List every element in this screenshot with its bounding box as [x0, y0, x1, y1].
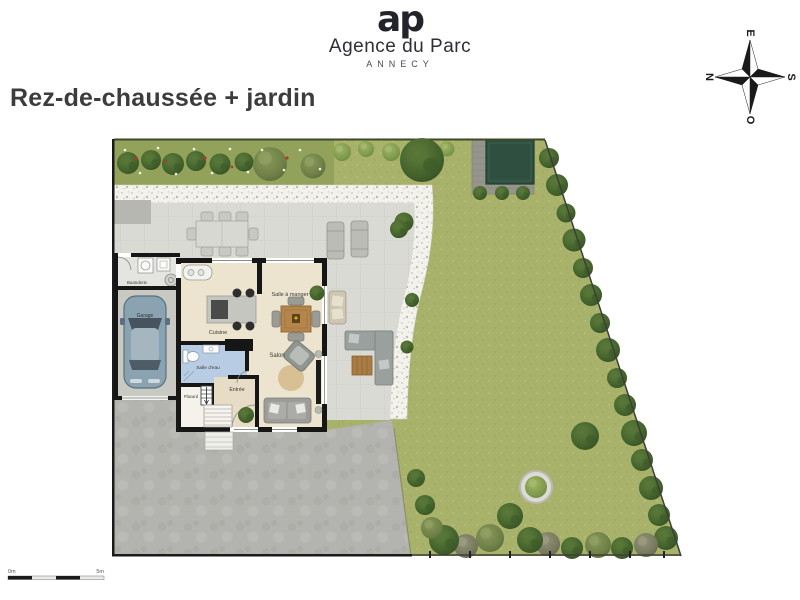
- room-label-cuisine: Cuisine: [209, 330, 227, 336]
- tv-sideboard: [316, 360, 321, 404]
- pool: [486, 140, 534, 184]
- scale-end-label: 5m: [96, 569, 104, 575]
- compass-west-label: O: [744, 116, 756, 125]
- compass-south-label: S: [785, 73, 797, 80]
- driveway-bottom-border: [112, 554, 412, 557]
- entry-steps: [205, 432, 233, 450]
- room-label-placard: Placard: [184, 394, 199, 399]
- scale-start-label: 0m: [8, 569, 16, 575]
- kitchen-sink: [183, 265, 212, 280]
- room-label-entree: Entrée: [229, 387, 244, 393]
- pool-area: [472, 140, 534, 200]
- paved-pad: [114, 200, 151, 224]
- room-label-salle-a-manger: Salle à manger: [272, 292, 309, 298]
- compass-rose: E N S O: [703, 29, 797, 124]
- room-label-buanderie: Buanderie: [127, 280, 148, 285]
- sofa: [264, 398, 311, 423]
- compass-north-label: N: [703, 73, 715, 81]
- round-shrub-feature: [520, 471, 552, 503]
- cooktop: [211, 300, 228, 319]
- room-label-salon: Salon: [269, 353, 284, 359]
- floor-plan: Buanderie Garage Cuisine Salle à manger …: [0, 0, 800, 600]
- car: [120, 296, 170, 388]
- room-label-salle-deau: Salle d'eau: [196, 365, 220, 371]
- page: ap Agence du Parc ANNECY Rez-de-chaussée…: [0, 0, 800, 600]
- compass-east-label: E: [744, 29, 756, 36]
- floor-plan-svg: Buanderie Garage Cuisine Salle à manger …: [0, 0, 800, 600]
- scale-bar: 0m 5m: [8, 569, 104, 580]
- room-label-garage: Garage: [137, 313, 154, 319]
